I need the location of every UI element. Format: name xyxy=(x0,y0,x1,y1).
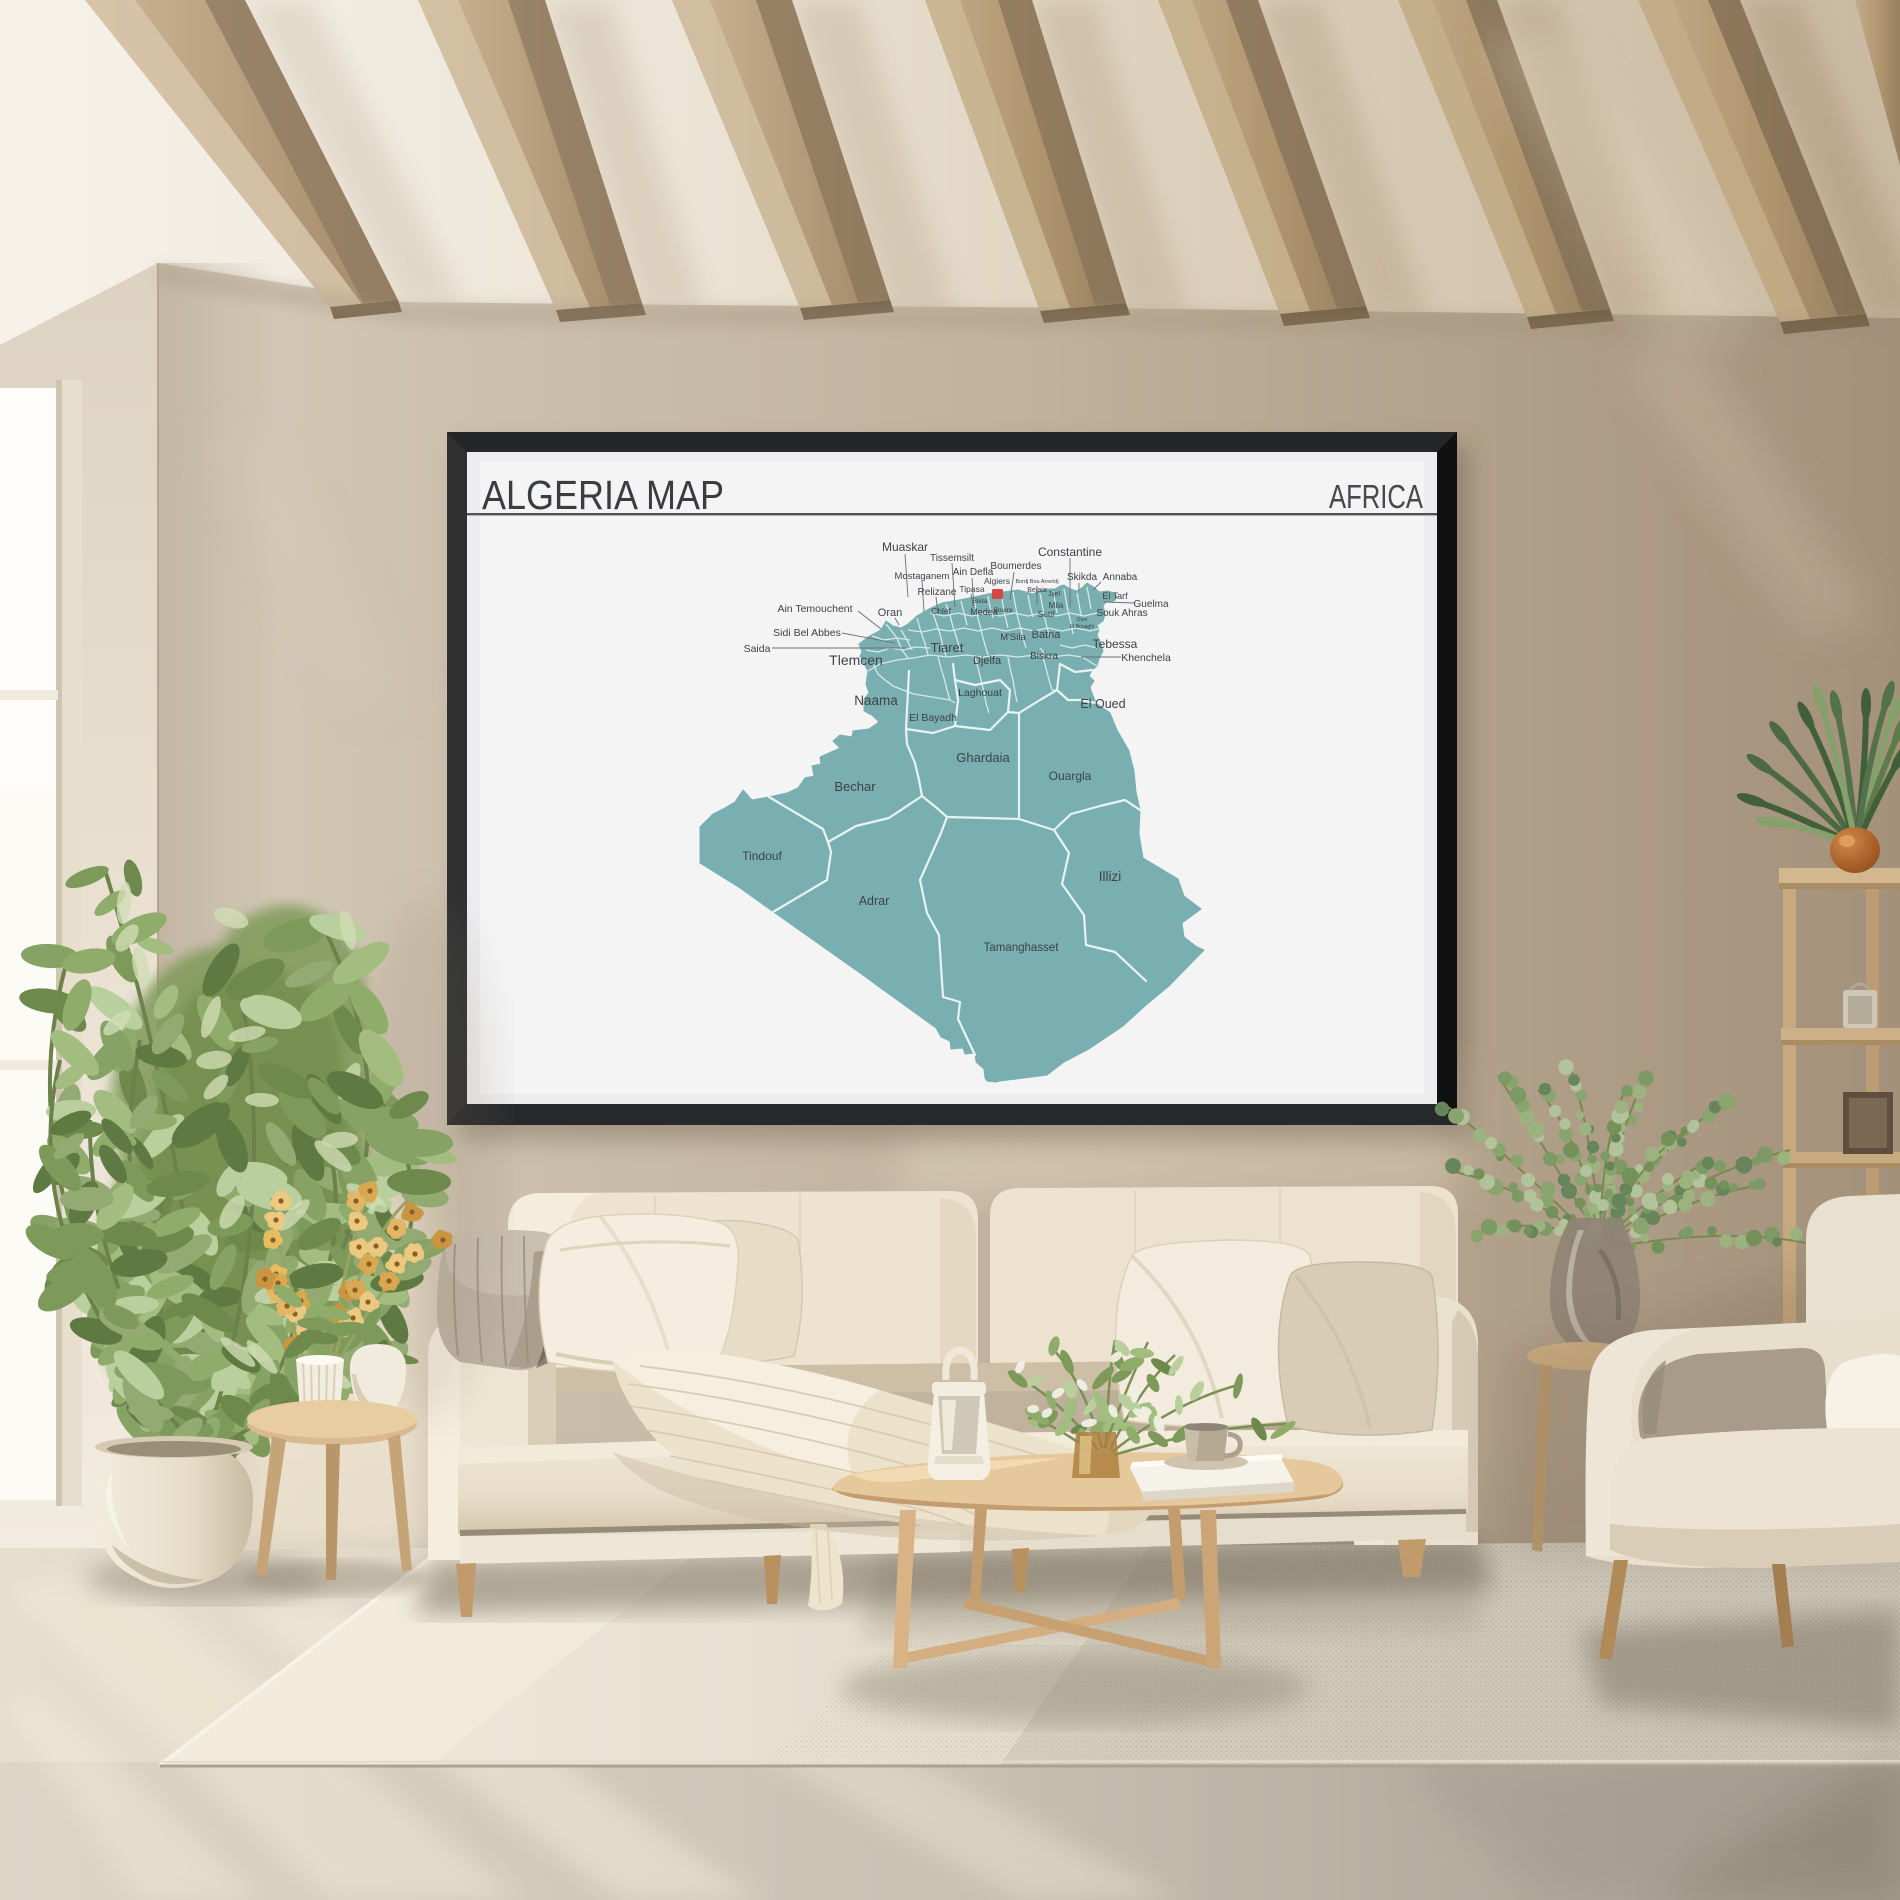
svg-text:Relizane: Relizane xyxy=(918,587,957,598)
svg-text:Laghouat: Laghouat xyxy=(958,687,1002,699)
svg-text:Skikda: Skikda xyxy=(1067,572,1097,583)
svg-text:Bouira: Bouira xyxy=(994,607,1013,614)
svg-text:AFRICA: AFRICA xyxy=(1329,478,1423,515)
svg-text:Tindouf: Tindouf xyxy=(742,849,782,863)
svg-text:Bechar: Bechar xyxy=(834,779,876,794)
svg-text:Oran: Oran xyxy=(878,607,902,619)
svg-text:Mostaganem: Mostaganem xyxy=(895,571,950,582)
svg-text:El Oued: El Oued xyxy=(1080,697,1125,711)
svg-text:Sidi Bel Abbes: Sidi Bel Abbes xyxy=(773,627,841,639)
svg-text:El Tarf: El Tarf xyxy=(1102,591,1128,601)
svg-text:Ghardaia: Ghardaia xyxy=(956,750,1010,765)
svg-text:Algiers: Algiers xyxy=(984,576,1010,586)
svg-text:ALGERIA MAP: ALGERIA MAP xyxy=(482,472,724,518)
svg-text:Naama: Naama xyxy=(854,693,898,708)
svg-text:Chlef: Chlef xyxy=(931,606,951,616)
svg-text:Batna: Batna xyxy=(1032,629,1062,641)
svg-text:Biskra: Biskra xyxy=(1030,651,1058,662)
svg-text:Saida: Saida xyxy=(744,643,771,655)
svg-text:El Bouaghi: El Bouaghi xyxy=(1070,624,1094,630)
svg-text:Setif: Setif xyxy=(1037,609,1055,619)
svg-text:Muaskar: Muaskar xyxy=(882,540,928,554)
svg-text:Djelfa: Djelfa xyxy=(973,655,1002,667)
svg-text:Khenchela: Khenchela xyxy=(1121,652,1171,664)
svg-text:Constantine: Constantine xyxy=(1038,545,1102,559)
svg-text:Ouargla: Ouargla xyxy=(1049,769,1092,783)
svg-text:Blida: Blida xyxy=(973,598,988,605)
svg-text:El Bayadh: El Bayadh xyxy=(909,712,957,724)
svg-text:Bejaia: Bejaia xyxy=(1027,587,1047,594)
svg-text:Boumerdes: Boumerdes xyxy=(990,561,1041,572)
svg-text:Jijel: Jijel xyxy=(1048,591,1061,598)
svg-text:Tipasa: Tipasa xyxy=(959,584,984,594)
svg-text:Tlemcen: Tlemcen xyxy=(829,652,883,668)
svg-text:Oum: Oum xyxy=(1077,617,1088,623)
svg-text:Ain Temouchent: Ain Temouchent xyxy=(777,603,852,615)
svg-text:Tissemsilt: Tissemsilt xyxy=(930,553,974,564)
svg-text:Tiaret: Tiaret xyxy=(931,640,964,655)
svg-text:Tamanghasset: Tamanghasset xyxy=(984,942,1060,954)
svg-text:Annaba: Annaba xyxy=(1103,572,1138,583)
svg-text:Bordj Bou Arreridj: Bordj Bou Arreridj xyxy=(1015,579,1058,585)
svg-text:Adrar: Adrar xyxy=(859,894,890,908)
svg-text:Souk Ahras: Souk Ahras xyxy=(1096,608,1147,619)
svg-text:M'Sila: M'Sila xyxy=(1000,632,1026,643)
svg-text:Illizi: Illizi xyxy=(1099,869,1122,884)
svg-text:Tebessa: Tebessa xyxy=(1093,637,1138,651)
